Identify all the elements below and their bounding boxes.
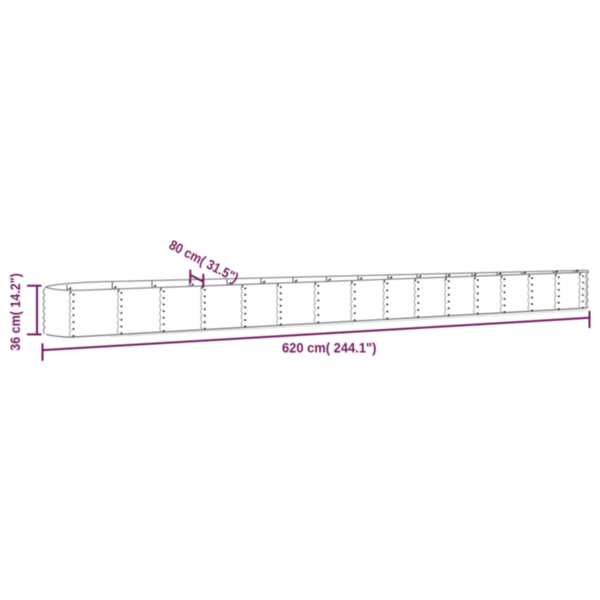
svg-text:620 cm( 244.1"): 620 cm( 244.1") bbox=[282, 341, 377, 356]
svg-text:36 cm( 14.2"): 36 cm( 14.2") bbox=[8, 273, 23, 351]
